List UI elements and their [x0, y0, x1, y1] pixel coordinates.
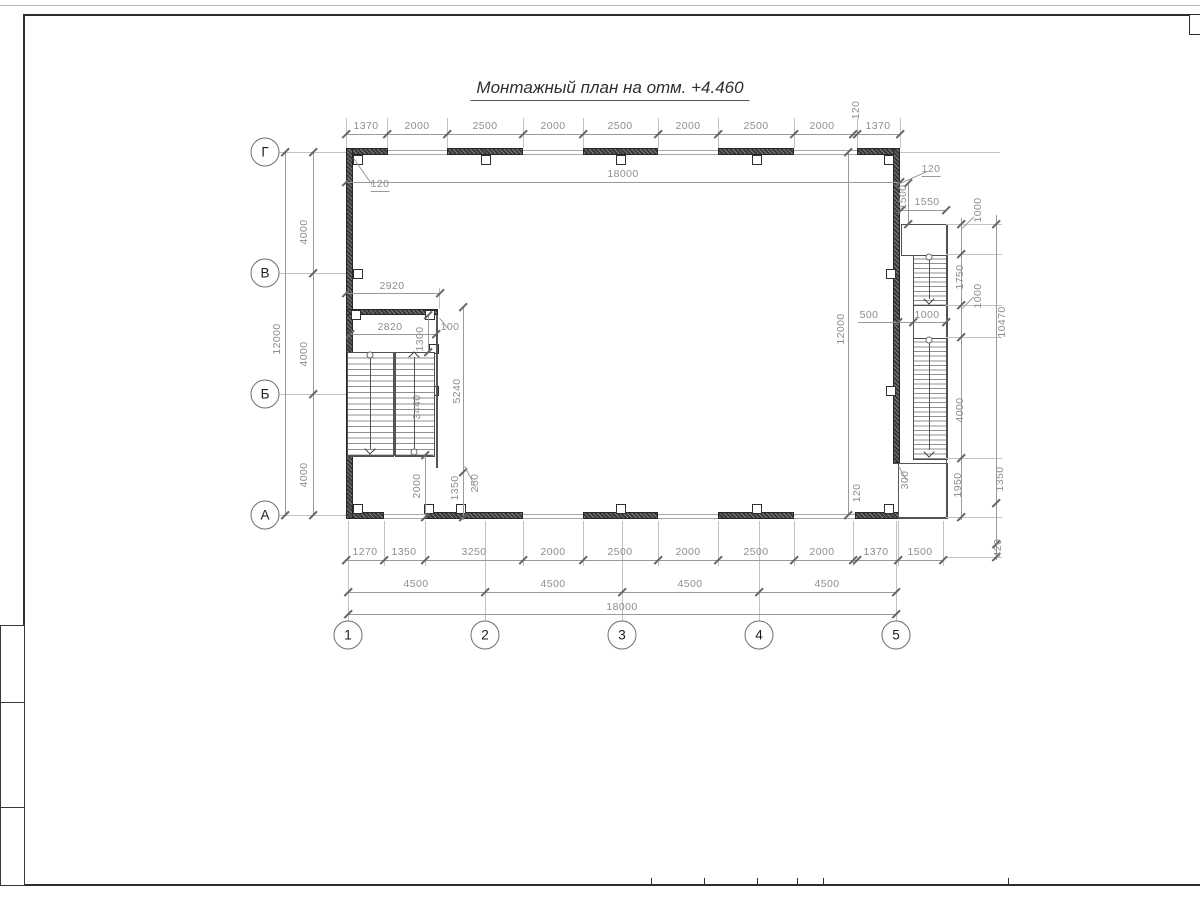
- extension-line: [485, 521, 486, 621]
- col-axis-bubble: 5: [882, 621, 911, 650]
- window-opening: [388, 150, 447, 155]
- dimension-label: 120: [922, 163, 941, 177]
- wall-segment: [425, 512, 523, 519]
- dimension-label: 1950: [952, 473, 964, 498]
- dimension-label: 2000: [541, 546, 566, 558]
- extension-line: [348, 521, 349, 621]
- dimension-line: [346, 134, 900, 135]
- dimension-label: 18000: [607, 168, 638, 180]
- dimension-line: [463, 307, 464, 520]
- dimension-label: 4500: [404, 578, 429, 590]
- dimension-label: 500: [860, 309, 879, 321]
- dimension-label: 2500: [744, 120, 769, 132]
- dimension-label: 120: [850, 101, 862, 120]
- dimension-line: [996, 215, 997, 560]
- edge-line: [898, 517, 946, 518]
- drawing-frame-line: [23, 14, 1200, 16]
- extension-line: [946, 337, 1002, 338]
- dimension-label: 1370: [864, 546, 889, 558]
- stair-landing: [901, 224, 948, 256]
- dimension-label: 2000: [676, 546, 701, 558]
- column-mark: [886, 386, 896, 396]
- dimension-label: 4000: [954, 398, 966, 423]
- dimension-label: 2000: [810, 546, 835, 558]
- plan-title: Монтажный план на отм. +4.460: [470, 78, 749, 101]
- dimension-label: 2500: [744, 546, 769, 558]
- stair-flight: [913, 337, 948, 460]
- dimension-label: 5240: [451, 379, 463, 404]
- extension-line: [759, 521, 760, 621]
- stair-start-dot: [367, 352, 374, 359]
- column-mark: [752, 155, 762, 165]
- dimension-line: [858, 322, 946, 323]
- dimension-label: 100: [441, 321, 460, 333]
- row-axis-bubble: А: [251, 501, 280, 530]
- dimension-line: [285, 152, 286, 515]
- dimension-label: 1350: [392, 546, 417, 558]
- column-mark: [616, 155, 626, 165]
- extension-line: [900, 152, 1000, 153]
- window-opening: [523, 514, 583, 519]
- edge-line: [946, 224, 947, 517]
- dimension-label: 18000: [606, 601, 637, 613]
- row-axis-bubble: Б: [251, 380, 280, 409]
- dimension-label: 4500: [678, 578, 703, 590]
- dimension-label: 1300: [414, 327, 426, 352]
- dimension-label: 4500: [815, 578, 840, 590]
- edge-line: [393, 352, 395, 455]
- dimension-label: 2000: [405, 120, 430, 132]
- title-block-tick: [797, 878, 798, 884]
- wall-segment: [447, 148, 523, 155]
- stair-start-dot: [926, 254, 933, 261]
- dimension-label: 4000: [298, 342, 310, 367]
- dimension-label: 12000: [271, 323, 283, 354]
- dimension-label: 2820: [378, 321, 403, 333]
- dimension-label: 120: [371, 178, 390, 192]
- column-mark: [886, 269, 896, 279]
- frame-corner-box: [1189, 14, 1200, 35]
- dimension-label: 1000: [972, 284, 984, 309]
- dimension-line: [348, 614, 896, 615]
- title-block-tick: [757, 878, 758, 884]
- dimension-label: 2500: [608, 120, 633, 132]
- dimension-label: 2000: [676, 120, 701, 132]
- dimension-line: [425, 455, 426, 517]
- window-opening: [658, 514, 718, 519]
- dimension-line: [313, 152, 314, 515]
- dimension-label: 250: [469, 474, 481, 493]
- column-mark: [353, 269, 363, 279]
- column-mark: [884, 155, 894, 165]
- col-axis-bubble: 3: [608, 621, 637, 650]
- page-edge-line: [0, 5, 1200, 6]
- drawing-sheet: Монтажный план на отм. +4.460 1370200025…: [0, 0, 1200, 900]
- dimension-label: 2000: [411, 474, 423, 499]
- title-block-tick: [1008, 878, 1009, 884]
- column-mark: [351, 310, 361, 320]
- dimension-label: 2500: [473, 120, 498, 132]
- col-axis-bubble: 2: [471, 621, 500, 650]
- drawing-frame-line: [0, 884, 1200, 886]
- edge-line: [347, 455, 433, 456]
- col-axis-bubble: 1: [334, 621, 363, 650]
- title-block-tick: [651, 878, 652, 884]
- column-mark: [884, 504, 894, 514]
- edge-line: [893, 463, 913, 464]
- extension-line: [946, 458, 1002, 459]
- title-block-cell: [0, 807, 25, 886]
- dimension-label: 2000: [810, 120, 835, 132]
- dimension-label: 1370: [866, 120, 891, 132]
- dimension-label: 4500: [541, 578, 566, 590]
- column-mark: [481, 155, 491, 165]
- dimension-label: 10470: [996, 306, 1008, 337]
- dimension-line: [428, 315, 429, 352]
- stair-direction-line: [370, 356, 371, 449]
- stair-start-dot: [926, 337, 933, 344]
- edge-line: [436, 315, 438, 468]
- window-opening: [523, 150, 583, 155]
- dimension-label: 1750: [954, 265, 966, 290]
- dimension-label: 3250: [462, 546, 487, 558]
- title-block-cell: [0, 625, 25, 704]
- dimension-label: 120: [851, 484, 863, 503]
- col-axis-bubble: 4: [745, 621, 774, 650]
- dimension-label: 1370: [354, 120, 379, 132]
- extension-line: [946, 254, 1002, 255]
- dimension-label: 1500: [897, 185, 909, 210]
- dimension-label: 1500: [908, 546, 933, 558]
- dimension-line: [346, 293, 440, 294]
- dimension-label: 4000: [298, 220, 310, 245]
- dimension-label: 1350: [449, 476, 461, 501]
- column-mark: [616, 504, 626, 514]
- dimension-line: [848, 152, 849, 515]
- column-mark: [752, 504, 762, 514]
- dimension-label: 2920: [380, 280, 405, 292]
- title-block-cell: [0, 702, 25, 809]
- dimension-label: 1000: [972, 198, 984, 223]
- dimension-label: 12000: [835, 313, 847, 344]
- dimension-label: 2000: [541, 120, 566, 132]
- extension-line: [896, 521, 897, 621]
- window-opening: [658, 150, 718, 155]
- dimension-line: [346, 182, 900, 183]
- dimension-label: 4000: [298, 463, 310, 488]
- dimension-label: 1270: [353, 546, 378, 558]
- column-mark: [353, 504, 363, 514]
- dimension-label: 420: [992, 539, 1004, 558]
- title-block-tick: [704, 878, 705, 884]
- row-axis-bubble: Г: [251, 138, 280, 167]
- stair-direction-line: [929, 341, 930, 450]
- dimension-label: 1000: [915, 309, 940, 321]
- extension-line: [946, 517, 1002, 518]
- dimension-label: 1550: [915, 196, 940, 208]
- dimension-label: 2500: [608, 546, 633, 558]
- wall-segment: [718, 148, 794, 155]
- dimension-label: 3440: [411, 395, 423, 420]
- row-axis-bubble: В: [251, 259, 280, 288]
- window-opening: [384, 514, 425, 519]
- dimension-label: 1350: [994, 467, 1006, 492]
- title-block-tick: [823, 878, 824, 884]
- wall-segment: [583, 148, 658, 155]
- dimension-label: 300: [899, 471, 911, 490]
